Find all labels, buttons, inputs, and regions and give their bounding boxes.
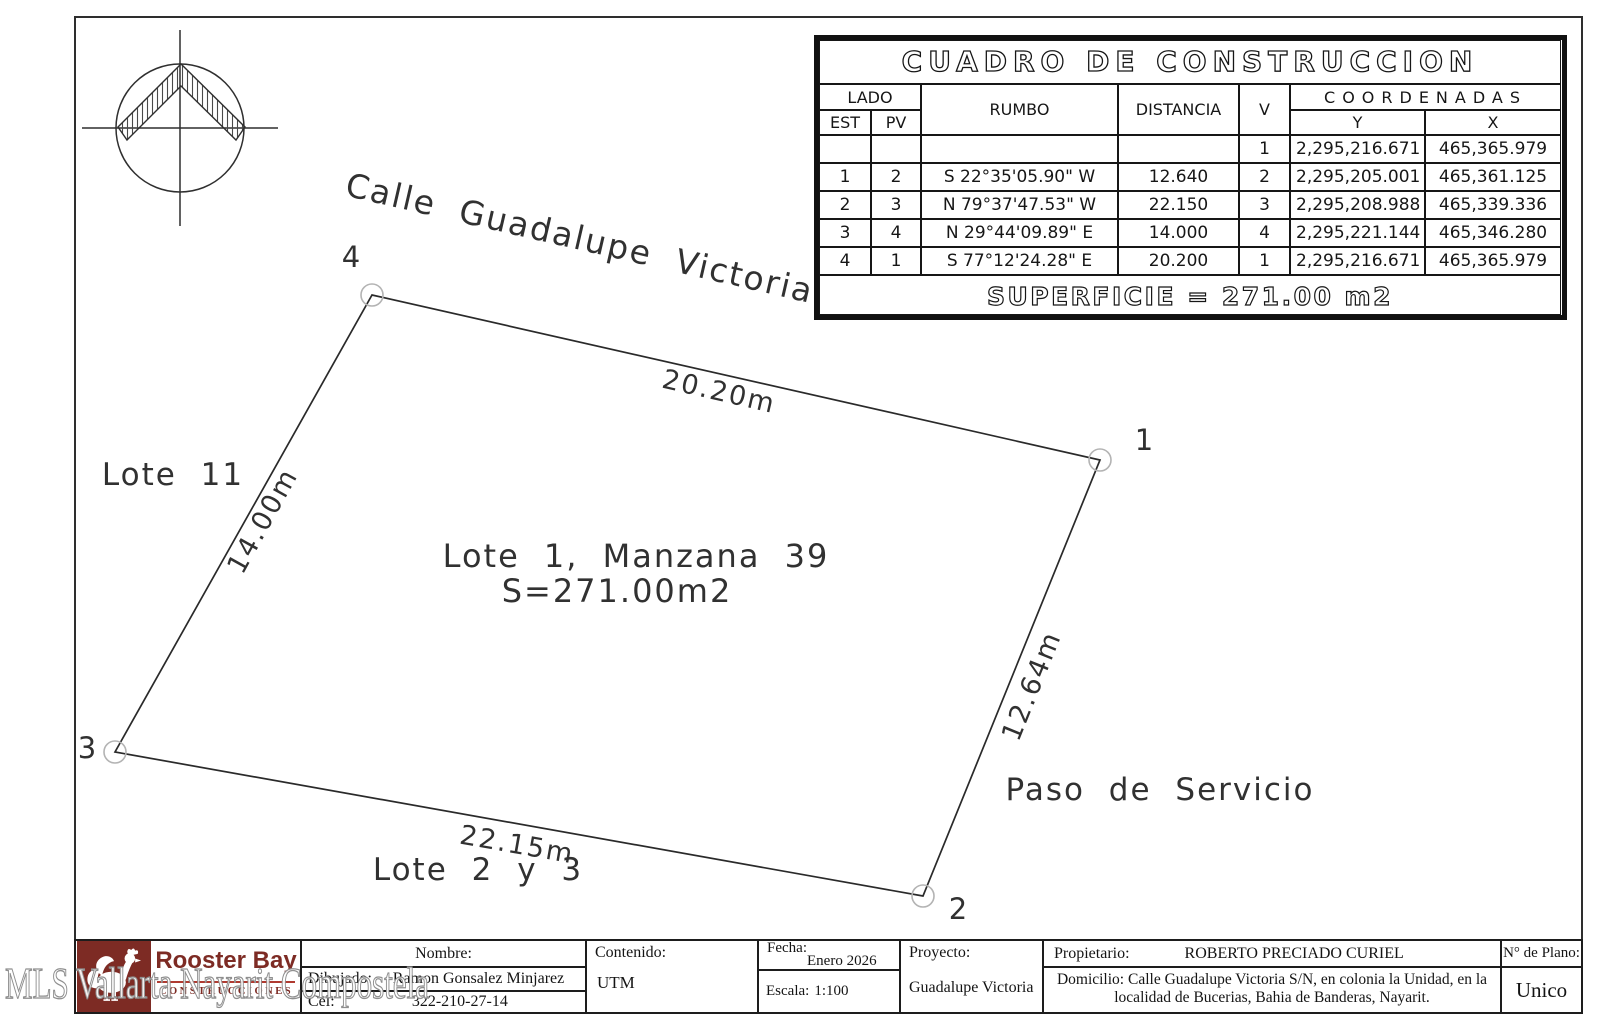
- proyecto-cell: Proyecto: Guadalupe Victoria: [899, 941, 1042, 1012]
- brand-subtitle: CONSTRUCCIONES: [152, 986, 300, 997]
- title-block: Rooster Bay CONSTRUCCIONES Nombre: Dibuj…: [74, 939, 1583, 1014]
- vertex-label-2: 2: [949, 892, 969, 926]
- fecha-value: Enero 2026: [767, 955, 899, 968]
- superficie-text-svg: SUPERFICIE = 271.00 m2: [820, 276, 1560, 314]
- table-cell: 4: [819, 247, 871, 275]
- plano-label: N° de Plano:: [1502, 941, 1581, 966]
- dibujado-label: Dibujado:: [302, 970, 372, 988]
- header-x: X: [1425, 110, 1561, 135]
- table-cell: 465,346.280: [1425, 219, 1561, 247]
- neighbor-left-label: Lote 11: [102, 457, 244, 493]
- table-cell: 1: [871, 247, 921, 275]
- header-y: Y: [1290, 110, 1425, 135]
- table-cell: 3: [1239, 191, 1290, 219]
- cel-label: Cel:: [302, 993, 335, 1011]
- propietario-value: ROBERTO PRECIADO CURIEL: [1130, 945, 1404, 963]
- logo-cell: Rooster Bay CONSTRUCCIONES: [76, 941, 300, 1012]
- table-cell: 3: [871, 191, 921, 219]
- table-cell: [819, 135, 871, 163]
- superficie-cell: SUPERFICIE = 271.00 m2: [819, 275, 1561, 315]
- svg-text:SUPERFICIE = 271.00 m2: SUPERFICIE = 271.00 m2: [987, 282, 1393, 311]
- brand-text-area: Rooster Bay CONSTRUCCIONES: [152, 941, 300, 1012]
- lot-area: S=271.00m2: [502, 572, 733, 610]
- brand-name: Rooster Bay: [152, 947, 300, 975]
- proyecto-label: Proyecto:: [909, 944, 970, 962]
- contenido-cell: Contenido: UTM: [585, 941, 757, 1012]
- table-cell: S 77°12'24.28" E: [921, 247, 1118, 275]
- domicilio-row: Domicilio: Calle Guadalupe Victoria S/N,…: [1044, 966, 1500, 1012]
- table-cell: 2: [871, 163, 921, 191]
- header-lado: LADO: [819, 84, 921, 110]
- table-cell: 2,295,205.001: [1290, 163, 1425, 191]
- table-cell: 20.200: [1118, 247, 1239, 275]
- header-pv: PV: [871, 110, 921, 135]
- header-distancia: DISTANCIA: [1118, 84, 1239, 135]
- contenido-label: Contenido:: [595, 944, 666, 962]
- dibujado-row: Dibujado: Ramon Gonsalez Minjarez: [302, 966, 585, 990]
- domicilio-value: Calle Guadalupe Victoria S/N, en colonia…: [1114, 971, 1487, 1006]
- table-cell: 4: [1239, 219, 1290, 247]
- table-cell: 465,339.336: [1425, 191, 1561, 219]
- vertex-label-3: 3: [78, 731, 98, 765]
- contenido-value: UTM: [597, 973, 635, 993]
- table-cell: [871, 135, 921, 163]
- propietario-row: Propietario: ROBERTO PRECIADO CURIEL: [1044, 941, 1500, 966]
- plano-value: Unico: [1502, 966, 1581, 1012]
- construction-table: CUADRO DE CONSTRUCCION LADO RUMBO DISTAN…: [814, 35, 1567, 320]
- domicilio-label: Domicilio:: [1057, 971, 1124, 988]
- table-cell: 4: [871, 219, 921, 247]
- vertex-label-4: 4: [342, 240, 362, 274]
- table-cell: 2,295,221.144: [1290, 219, 1425, 247]
- table-cell: N 29°44'09.89" E: [921, 219, 1118, 247]
- table-cell: 1: [1239, 247, 1290, 275]
- table-cell: N 79°37'47.53" W: [921, 191, 1118, 219]
- construction-table-title: CUADRO DE CONSTRUCCION: [820, 41, 1560, 83]
- header-rumbo: RUMBO: [921, 84, 1118, 135]
- escala-value: 1:100: [809, 983, 848, 1000]
- table-cell: 465,365.979: [1425, 135, 1561, 163]
- table-cell: 3: [819, 219, 871, 247]
- rooster-icon: [81, 944, 147, 1010]
- neighbor-bottom-label: Lote 2 y 3: [373, 852, 583, 888]
- propietario-label: Propietario:: [1054, 945, 1130, 963]
- table-cell: 12.640: [1118, 163, 1239, 191]
- brand-rule: [157, 981, 295, 983]
- table-cell: 2: [819, 191, 871, 219]
- propietario-cell: Propietario: ROBERTO PRECIADO CURIEL Dom…: [1042, 941, 1500, 1012]
- table-cell: 2,295,208.988: [1290, 191, 1425, 219]
- table-cell: 2,295,216.671: [1290, 247, 1425, 275]
- brand-logo-box: [77, 941, 151, 1012]
- table-cell: 465,365.979: [1425, 247, 1561, 275]
- table-cell: S 22°35'05.90" W: [921, 163, 1118, 191]
- service-path-label: Paso de Servicio: [1006, 772, 1315, 808]
- table-cell: 1: [819, 163, 871, 191]
- construction-table-title-cell: CUADRO DE CONSTRUCCION: [819, 40, 1561, 84]
- table-cell: 1: [1239, 135, 1290, 163]
- vertex-label-1: 1: [1135, 423, 1155, 457]
- escala-label: Escala:: [766, 983, 809, 1000]
- table-cell: 22.150: [1118, 191, 1239, 219]
- header-coordenadas: COORDENADAS: [1290, 84, 1561, 110]
- fecha-row: Fecha: Enero 2026: [759, 941, 899, 969]
- table-cell: 2: [1239, 163, 1290, 191]
- proyecto-value: Guadalupe Victoria: [909, 979, 1033, 997]
- table-cell: [921, 135, 1118, 163]
- escala-row: Escala: 1:100: [759, 969, 899, 1012]
- table-cell: [1118, 135, 1239, 163]
- table-cell: 465,361.125: [1425, 163, 1561, 191]
- survey-sheet: Calle Guadalupe Victoria 20.20m 14.00m 1…: [0, 0, 1600, 1035]
- nombre-label: Nombre:: [302, 941, 585, 966]
- north-arrow-icon: [82, 30, 278, 226]
- header-est: EST: [819, 110, 871, 135]
- header-v: V: [1239, 84, 1290, 135]
- plano-cell: N° de Plano: Unico: [1500, 941, 1581, 1012]
- cel-value: 322-210-27-14: [412, 993, 508, 1011]
- nombre-cell: Nombre: Dibujado: Ramon Gonsalez Minjare…: [300, 941, 585, 1012]
- dibujado-value: Ramon Gonsalez Minjarez: [393, 970, 565, 988]
- cel-row: Cel: 322-210-27-14: [302, 990, 585, 1012]
- table-cell: 14.000: [1118, 219, 1239, 247]
- svg-text:CUADRO DE CONSTRUCCION: CUADRO DE CONSTRUCCION: [902, 45, 1479, 78]
- table-cell: 2,295,216.671: [1290, 135, 1425, 163]
- fecha-cell: Fecha: Enero 2026 Escala: 1:100: [757, 941, 899, 1012]
- lot-title: Lote 1, Manzana 39: [443, 537, 830, 575]
